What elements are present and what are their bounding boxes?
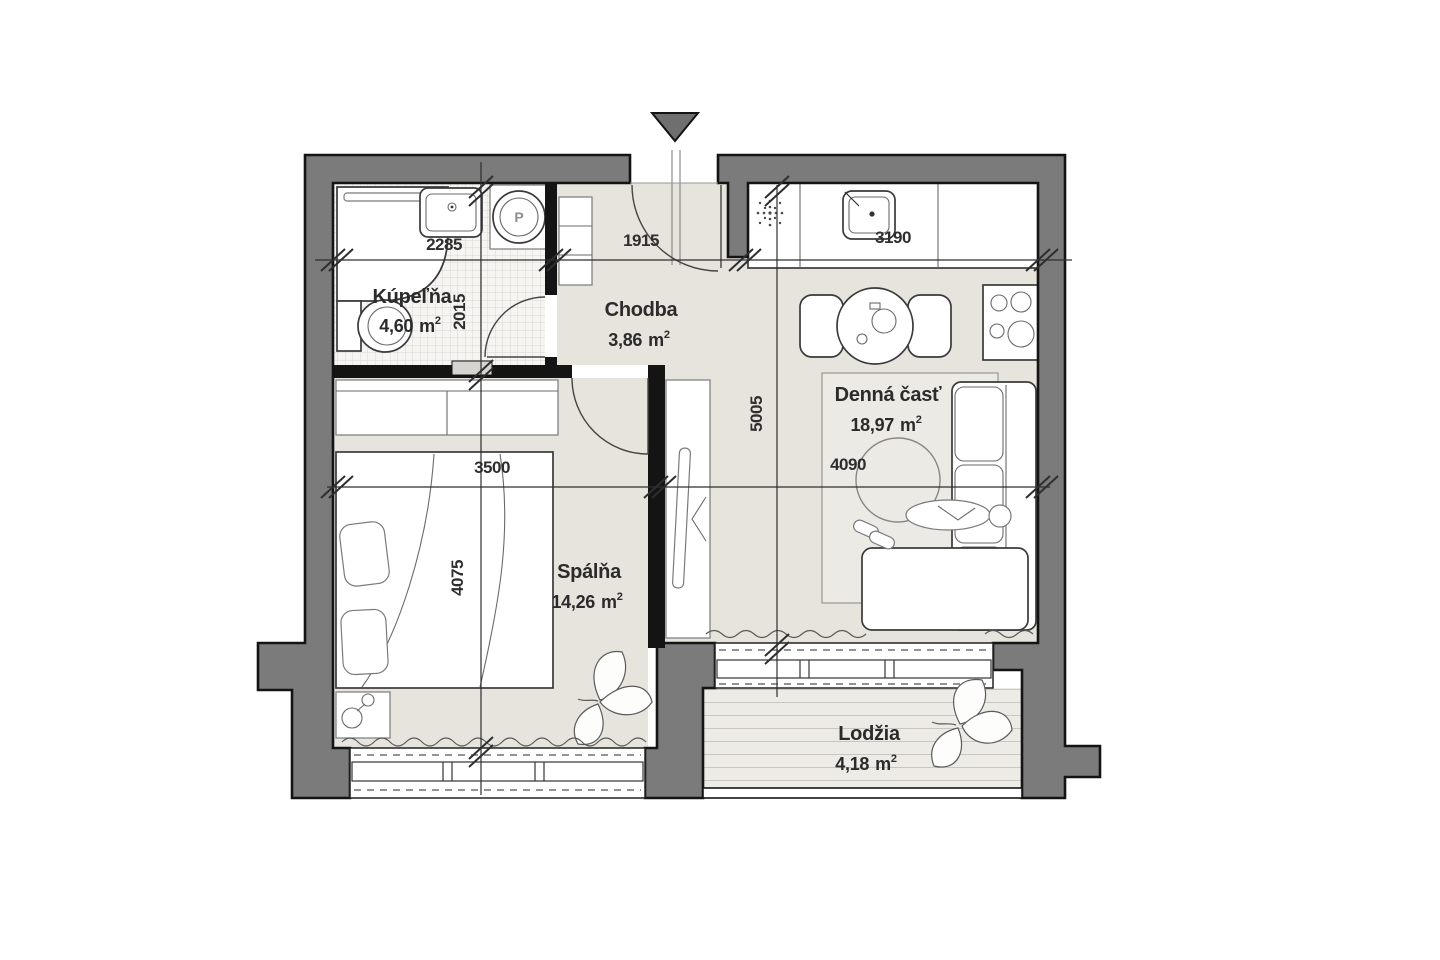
room-label-loggia: Lodžia — [838, 723, 901, 745]
wall-bathroom-right-upper — [545, 183, 557, 295]
dining-chair-right — [908, 295, 951, 357]
person-body — [906, 500, 990, 530]
floor-plan: P — [0, 0, 1440, 960]
pillow — [340, 609, 388, 675]
bedroom-furniture — [336, 380, 558, 738]
wall-bedroom-right — [648, 365, 665, 648]
dim-label-bedroom-height: 4075 — [448, 560, 467, 596]
entrance-arrow-icon — [652, 113, 698, 141]
wall-niche — [452, 361, 492, 375]
room-area-living: 18,97m2 — [850, 414, 921, 435]
nightstand — [336, 692, 390, 738]
room-label-bathroom: Kúpeľňa — [373, 286, 453, 308]
dim-label-bedroom-width: 3500 — [474, 458, 510, 477]
room-label-bedroom: Spálňa — [557, 561, 622, 583]
room-area-hallway: 3,86m2 — [608, 329, 670, 350]
wall-bathroom-right-lower — [545, 357, 557, 366]
dim-label-hallway-width: 1915 — [623, 231, 659, 250]
towel-rail — [344, 193, 430, 201]
loggia-door-frame — [717, 660, 991, 678]
dim-label-bathroom-width: 2285 — [426, 235, 462, 254]
sink-faucet-dot — [451, 206, 454, 209]
person-head — [989, 505, 1011, 527]
tv-unit — [666, 380, 710, 638]
dim-label-living-width: 4090 — [830, 455, 866, 474]
kitchen-faucet-dot — [869, 211, 874, 216]
bedroom-door-opening — [572, 365, 648, 378]
window-bedroom — [350, 748, 645, 798]
hall-cabinet-body — [559, 197, 592, 285]
bedroom-window-frame — [352, 762, 643, 781]
room-label-hallway: Chodba — [605, 299, 679, 321]
dining-table — [837, 288, 913, 364]
dim-label-bathroom-height: 2015 — [450, 294, 469, 330]
window-loggia — [715, 643, 993, 688]
washer-label: P — [514, 209, 523, 225]
room-area-bathroom: 4,60m2 — [379, 315, 441, 336]
dining-set — [800, 288, 951, 364]
dim-label-living-height: 5005 — [747, 396, 766, 432]
room-area-bedroom: 14,26m2 — [551, 591, 622, 612]
room-area-loggia: 4,18m2 — [835, 753, 897, 774]
room-label-living: Denná časť — [835, 384, 942, 406]
hall-cabinet — [559, 197, 592, 285]
dim-label-kitchen-width: 3190 — [875, 228, 911, 247]
loggia-parapet — [703, 788, 1022, 798]
daybed — [862, 548, 1028, 630]
pillow — [338, 520, 390, 587]
